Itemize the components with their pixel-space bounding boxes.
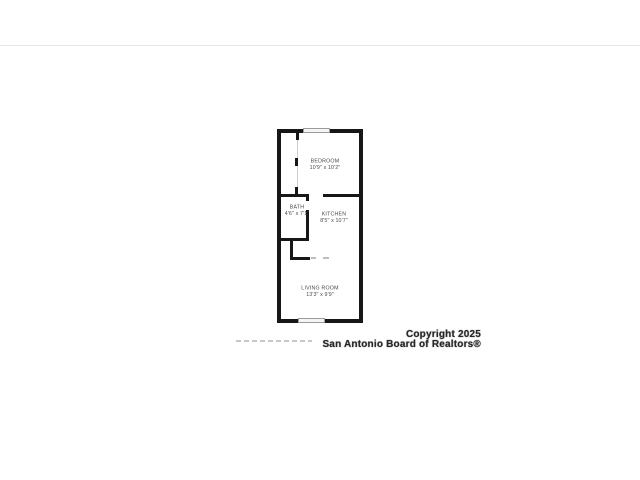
copyright-line: San Antonio Board of Realtors® (313, 340, 481, 350)
fine-print-text (236, 340, 312, 342)
copyright-watermark: Copyright 2025 San Antonio Board of Real… (313, 330, 481, 350)
bath-door-jamb (306, 197, 309, 201)
mid-wall-left (277, 194, 309, 197)
room-dimensions: 8'5" x 10'7" (320, 218, 348, 225)
bath-bottom-wall (277, 238, 309, 241)
window-bottom (298, 318, 325, 323)
utility-bottom-wall (290, 257, 310, 260)
mid-wall-right (323, 194, 363, 197)
room-label-bath: BATH 4'6" x 7'1" (285, 204, 310, 217)
room-label-living-room: LIVING ROOM 13'3" x 9'9" (301, 285, 338, 298)
fixture-mark (323, 257, 329, 259)
room-dimensions: 10'9" x 10'2" (310, 165, 341, 172)
wall-left (277, 129, 281, 323)
room-label-bedroom: BEDROOM 10'9" x 10'2" (310, 158, 341, 171)
closet-wall-stub (296, 133, 299, 140)
window-top (303, 128, 330, 133)
wall-right (359, 129, 363, 323)
room-dimensions: 13'3" x 9'9" (301, 292, 338, 299)
room-dimensions: 4'6" x 7'1" (285, 211, 310, 218)
closet-wall-stub (295, 158, 298, 166)
top-divider-line (0, 45, 640, 46)
room-label-kitchen: KITCHEN 8'5" x 10'7" (320, 211, 348, 224)
fixture-mark (311, 257, 316, 259)
